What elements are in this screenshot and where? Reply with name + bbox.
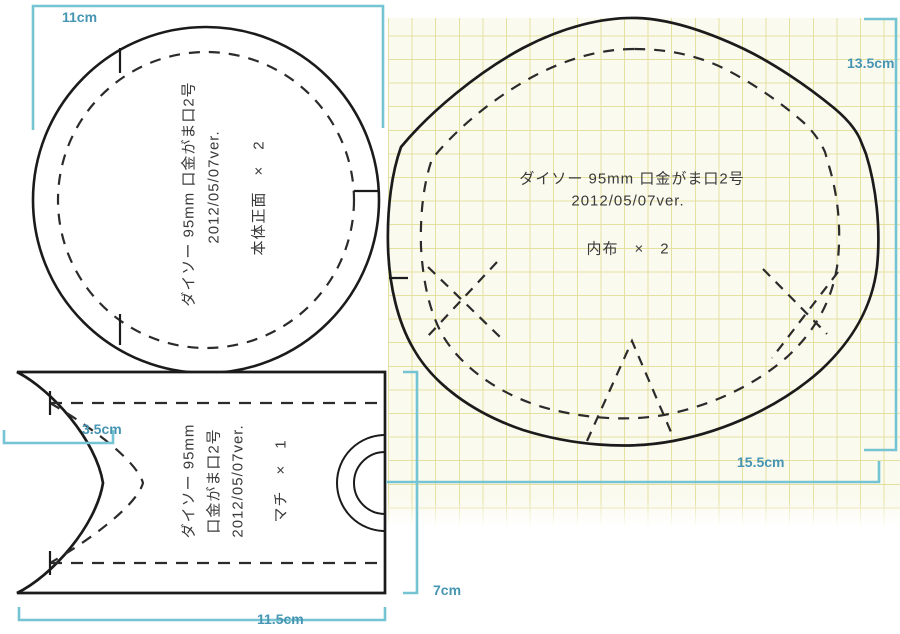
lining-piece-label-quantity: 内布 × 2 [586, 238, 669, 259]
dim-line-13-5cm [864, 19, 896, 450]
front-piece-label-quantity: 本体正面 × 2 [248, 140, 269, 255]
pattern-drawing [0, 0, 900, 634]
lining-center-dart [587, 341, 671, 441]
gusset-outline [17, 372, 385, 593]
front-piece-label-version: 2012/05/07ver. [206, 130, 223, 243]
lining-piece-outline [388, 18, 879, 446]
dim-label-15-5cm: 15.5cm [737, 454, 784, 470]
gusset-label-version: 2012/05/07ver. [230, 424, 247, 537]
dim-label-11-5cm: 11.5cm [257, 611, 304, 627]
dim-label-13-5cm: 13.5cm [847, 55, 894, 71]
dim-label-7cm: 7cm [433, 582, 461, 598]
front-piece-label-title: ダイソー 95mm 口金がま口2号 [178, 81, 199, 306]
dim-label-3-5cm: 3.5cm [82, 421, 122, 437]
sewing-pattern-sheet: ダイソー 95mm 口金がま口2号 2012/05/07ver. 本体正面 × … [0, 0, 900, 634]
dim-line-11-5cm [19, 607, 385, 620]
lining-piece-label-title: ダイソー 95mm 口金がま口2号 [519, 168, 744, 189]
lining-piece-label-version: 2012/05/07ver. [571, 193, 684, 210]
lining-piece-seamline [421, 49, 839, 418]
dim-line-15-5cm [386, 461, 879, 482]
gusset-label-quantity: マチ × 1 [270, 439, 291, 522]
gusset-label-title-1: ダイソー 95mm [178, 424, 199, 539]
gusset-label-title-2: 口金がま口2号 [203, 428, 224, 533]
dim-label-11cm: 11cm [62, 9, 97, 25]
